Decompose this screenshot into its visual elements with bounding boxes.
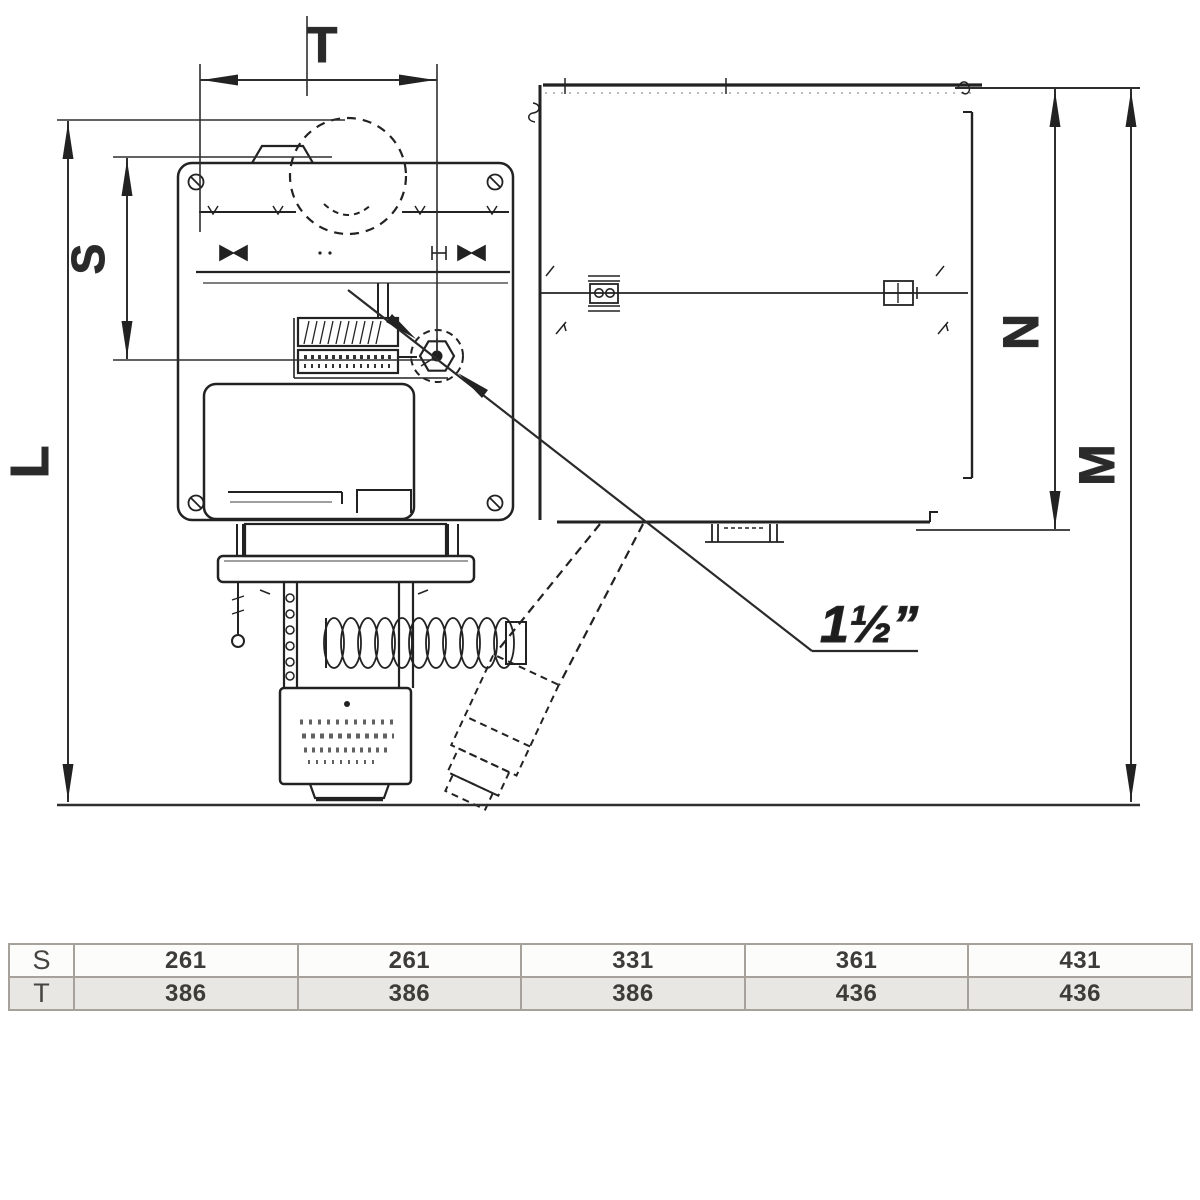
dimension-S: S: [62, 157, 434, 360]
connection-size-label: 1½”: [820, 596, 918, 654]
dim-label-L: L: [0, 446, 60, 479]
dimension-M: M: [1069, 89, 1137, 802]
table-cell: 386: [298, 977, 522, 1010]
dimension-table: S 261 261 331 361 431 T 386 386 386 436 …: [8, 943, 1193, 1011]
table-cell: 386: [521, 977, 745, 1010]
burner-circle: [290, 118, 406, 234]
row-label-T: T: [9, 977, 74, 1010]
tank-bottom-bracket: [705, 524, 784, 542]
side-view-tank: [529, 78, 982, 542]
front-view: [178, 118, 643, 815]
table-cell: 361: [745, 944, 969, 977]
burner-arc: [324, 204, 372, 215]
dim-label-T: T: [307, 17, 338, 73]
discharge-duct: [494, 524, 643, 685]
technical-drawing: T S L N M: [0, 0, 1200, 930]
table-cell: 431: [968, 944, 1192, 977]
housing-lines: [196, 206, 510, 283]
table-row-S: S 261 261 331 361 431: [9, 944, 1192, 977]
clamp-symbols: [220, 246, 485, 260]
union-fitting-right: [884, 281, 917, 305]
row-label-S: S: [9, 944, 74, 977]
screw-icon: [189, 175, 503, 511]
dim-label-S: S: [62, 244, 114, 275]
mounting-plate: [218, 524, 474, 582]
table-row-T: T 386 386 386 436 436: [9, 977, 1192, 1010]
control-box: [204, 384, 414, 519]
table-cell: 261: [74, 944, 298, 977]
table-cell: 436: [745, 977, 969, 1010]
dimension-T: T: [200, 16, 437, 352]
dim-label-N: N: [993, 314, 1049, 350]
dimension-L: L: [0, 120, 345, 802]
table-cell: 386: [74, 977, 298, 1010]
connection-callout: 1½”: [348, 290, 918, 654]
table-cell: 331: [521, 944, 745, 977]
table-cell: 261: [298, 944, 522, 977]
flex-hose: [324, 618, 526, 668]
unit-frame: [178, 163, 513, 520]
pump-body: [280, 688, 411, 800]
dim-label-M: M: [1069, 444, 1125, 486]
top-bump: [252, 146, 313, 163]
tank-inner-wall: [963, 112, 972, 478]
hook-rod: [232, 582, 244, 647]
elbow-fitting: [433, 654, 559, 815]
table-cell: 436: [968, 977, 1192, 1010]
